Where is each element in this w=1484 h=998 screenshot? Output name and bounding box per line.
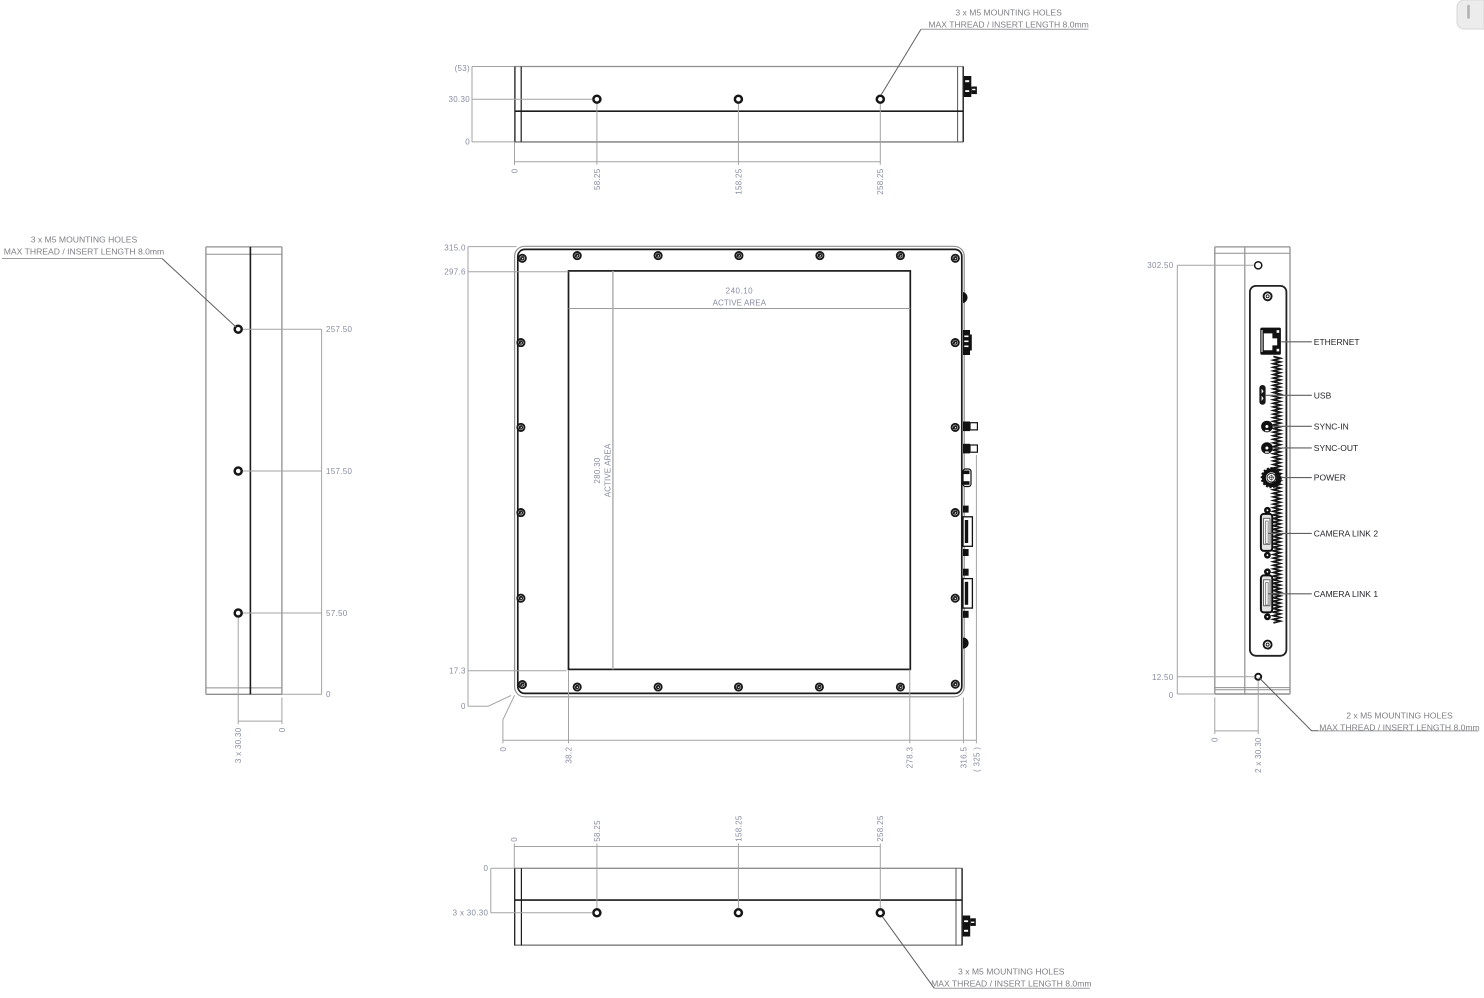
- svg-text:57.50: 57.50: [326, 609, 348, 618]
- svg-text:0: 0: [1211, 737, 1220, 742]
- svg-text:MAX THREAD / INSERT LENGTH 8.0: MAX THREAD / INSERT LENGTH 8.0mm: [928, 20, 1088, 30]
- svg-text:157.50: 157.50: [326, 467, 353, 476]
- svg-text:0: 0: [465, 138, 470, 147]
- svg-text:ACTIVE AREA: ACTIVE AREA: [713, 299, 767, 308]
- svg-text:( 325 ): ( 325 ): [972, 747, 981, 772]
- svg-text:3 x 30.30: 3 x 30.30: [453, 909, 489, 918]
- svg-text:ETHERNET: ETHERNET: [1314, 337, 1360, 347]
- svg-text:3 x M5 MOUNTING HOLES: 3 x M5 MOUNTING HOLES: [955, 8, 1062, 18]
- svg-text:MAX THREAD / INSERT LENGTH 8.0: MAX THREAD / INSERT LENGTH 8.0mm: [4, 247, 164, 257]
- svg-text:38.2: 38.2: [564, 747, 573, 764]
- svg-text:240.10: 240.10: [726, 287, 754, 296]
- svg-text:12.50: 12.50: [1152, 673, 1174, 682]
- svg-text:316.5: 316.5: [959, 747, 968, 769]
- svg-text:315.0: 315.0: [444, 244, 466, 253]
- svg-text:0: 0: [510, 168, 519, 173]
- svg-text:0: 0: [326, 690, 331, 699]
- svg-text:297.6: 297.6: [444, 268, 466, 277]
- svg-text:257.50: 257.50: [326, 325, 353, 334]
- svg-text:SYNC-OUT: SYNC-OUT: [1314, 443, 1358, 453]
- svg-text:258.25: 258.25: [876, 815, 885, 842]
- svg-text:278.3: 278.3: [906, 747, 915, 769]
- svg-text:USB: USB: [1314, 390, 1332, 400]
- svg-text:17.3: 17.3: [449, 667, 466, 676]
- svg-text:2 x M5 MOUNTING HOLES: 2 x M5 MOUNTING HOLES: [1346, 711, 1453, 721]
- svg-text:158.25: 158.25: [734, 168, 743, 195]
- svg-text:CAMERA LINK 1: CAMERA LINK 1: [1314, 589, 1379, 599]
- svg-text:58.25: 58.25: [593, 820, 602, 842]
- svg-text:258.25: 258.25: [876, 168, 885, 195]
- svg-text:0: 0: [461, 702, 466, 711]
- svg-text:MAX THREAD / INSERT LENGTH 8.0: MAX THREAD / INSERT LENGTH 8.0mm: [931, 979, 1091, 989]
- svg-text:0: 0: [510, 837, 519, 842]
- svg-text:158.25: 158.25: [734, 815, 743, 842]
- svg-text:3 x M5 MOUNTING HOLES: 3 x M5 MOUNTING HOLES: [958, 967, 1065, 977]
- svg-text:302.50: 302.50: [1147, 261, 1174, 270]
- svg-text:280.30: 280.30: [593, 457, 602, 484]
- svg-text:POWER: POWER: [1314, 473, 1346, 483]
- svg-text:0: 0: [1169, 691, 1174, 700]
- svg-text:0: 0: [484, 864, 489, 873]
- svg-text:CAMERA LINK 2: CAMERA LINK 2: [1314, 529, 1379, 539]
- svg-text:0: 0: [278, 727, 287, 732]
- svg-text:ACTIVE AREA: ACTIVE AREA: [604, 443, 613, 497]
- svg-text:2 x 30.30: 2 x 30.30: [1254, 737, 1263, 773]
- svg-text:0: 0: [499, 747, 508, 752]
- svg-text:3 x 30.30: 3 x 30.30: [234, 727, 243, 763]
- svg-text:30.30: 30.30: [448, 95, 470, 104]
- svg-text:(53): (53): [455, 64, 470, 73]
- svg-text:SYNC-IN: SYNC-IN: [1314, 421, 1349, 431]
- svg-text:58.25: 58.25: [593, 168, 602, 190]
- svg-text:3 x M5 MOUNTING HOLES: 3 x M5 MOUNTING HOLES: [31, 235, 138, 245]
